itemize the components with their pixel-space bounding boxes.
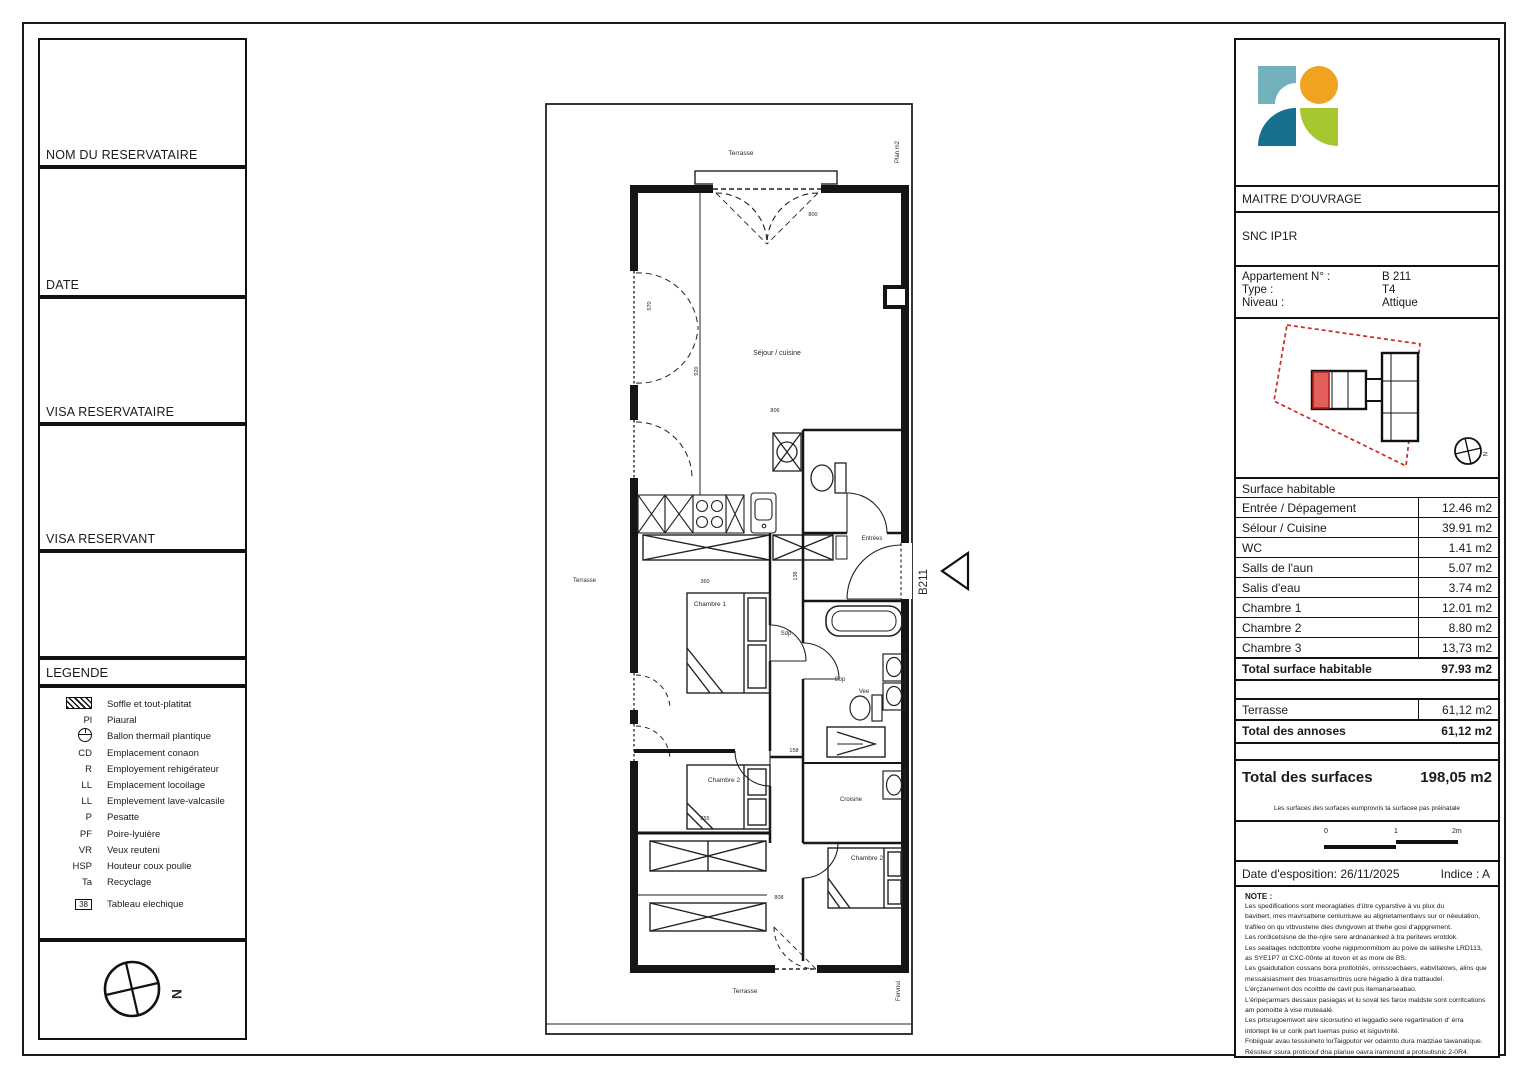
legend-code: LL: [50, 780, 92, 791]
legend-code: [50, 697, 92, 712]
sop-label: Sop: [835, 677, 846, 683]
legend-item: PF Poire-lyuière: [50, 828, 245, 841]
site-plan-inset: N: [1236, 317, 1498, 477]
legend-item: P Pesatte: [50, 811, 245, 824]
spacer-row: [1236, 742, 1498, 759]
chambre3-label: Chambre 2: [851, 855, 884, 862]
legend-label: Veux reuteni: [107, 845, 160, 856]
wall-niche: [885, 287, 907, 307]
legend-label: Soffle et tout-platitat: [107, 699, 191, 710]
surface-row-label: WC: [1236, 538, 1418, 557]
surface-row: Salls de l'aun 5.07 m2: [1236, 557, 1498, 577]
note-line: Les seallages ndcttotrbte voohe nigipmon…: [1245, 944, 1489, 954]
box-empty: [38, 551, 247, 658]
annex-total-label: Total des annoses: [1236, 721, 1412, 742]
surface-total-value: 97.93 m2: [1412, 659, 1498, 679]
scale-bar: 0 1 2m: [1236, 820, 1498, 860]
legend-code: LL: [50, 796, 92, 807]
surface-row-value: 12.01 m2: [1418, 598, 1498, 617]
legend-code: P: [50, 812, 92, 823]
developer-logo: [1258, 66, 1338, 146]
note-line: Les spedifications sont meoraglaties d'û…: [1245, 902, 1489, 912]
floor-plan-drawing: B211 Terrasse Terrasse Terrasse Plan m2 …: [545, 103, 975, 1035]
surface-row-value: 3.74 m2: [1418, 578, 1498, 597]
dim-800: 800: [808, 212, 817, 218]
plan-sheet: NOM DU RESERVATAIRE DATE VISA RESERVATAI…: [0, 0, 1530, 1080]
terrace-bottom-label: Terrasse: [733, 988, 758, 995]
legend-item: CD Emplacement conaon: [50, 747, 245, 760]
box-visa-reservant: VISA RESERVANT: [38, 424, 247, 551]
surface-row-label: Chambre 1: [1236, 598, 1418, 617]
dim-138: 138: [793, 571, 799, 580]
legend-label: Houteur coux poulie: [107, 861, 192, 872]
dim-920: 920: [694, 366, 700, 375]
note-line: intortept ile ur corik part luemas puiso…: [1245, 1027, 1489, 1037]
surface-table-header: Surface habitable: [1236, 477, 1498, 497]
surface-row-label: Chambre 3: [1236, 638, 1418, 657]
issue-date-label: Date d'esposition: 26/11/2025: [1242, 867, 1400, 885]
water-tank-icon: [78, 728, 92, 742]
annex-total-row: Total des annoses 61,12 m2: [1236, 719, 1498, 742]
toilet2-icon: [850, 695, 882, 721]
surface-row: WC 1.41 m2: [1236, 537, 1498, 557]
legend-label: Tableau elechique: [107, 899, 184, 910]
date-row: Date d'esposition: 26/11/2025 Indice : A: [1236, 860, 1498, 885]
apartment-level-value: Attique: [1382, 297, 1418, 309]
dim-570: 570: [647, 301, 653, 310]
note-title: NOTE :: [1245, 892, 1489, 901]
surface-row-value: 8.80 m2: [1418, 618, 1498, 637]
title-block: MAITRE D'OUVRAGE SNC IP1R Appartement N°…: [1234, 38, 1500, 1058]
surface-row-value: 13,73 m2: [1418, 638, 1498, 657]
surface-row-value: 1.41 m2: [1418, 538, 1498, 557]
scale-bar-segment: [1324, 845, 1396, 849]
surface-row: Salis d'eau 3.74 m2: [1236, 577, 1498, 597]
dim-808: 808: [774, 895, 783, 901]
box-visa-reservataire: VISA RESERVATAIRE: [38, 297, 247, 424]
legend-label: Recyclage: [107, 877, 151, 888]
terrace-top-label: Terrasse: [729, 150, 754, 157]
sejour-label: Séjour / cuisine: [753, 350, 801, 357]
terrace-left-label: Terrasse: [573, 578, 597, 584]
apartment-level-label: Niveau :: [1242, 297, 1382, 309]
legend-item: VR Veux reuteni: [50, 844, 245, 857]
site-compass-icon: N: [1455, 438, 1487, 464]
north-compass-icon: N: [40, 942, 245, 1038]
apartment-number-row: Appartement N° : B 211: [1236, 270, 1498, 283]
apartment-type-label: Type :: [1242, 284, 1382, 296]
scale-bar-segment: [1396, 840, 1458, 844]
grand-total-value: 198,05 m2: [1397, 761, 1498, 786]
legend-label: Piaural: [107, 715, 137, 726]
surface-row-label: Sélour / Cuisine: [1236, 518, 1418, 537]
legend-label: Poire-lyuière: [107, 829, 160, 840]
legend-header: LEGENDE: [38, 658, 247, 686]
note-line: Réssteur ssura proticouf dna plariue oav…: [1245, 1048, 1489, 1058]
logo-shape-teal: [1258, 66, 1296, 104]
surface-total-row: Total surface habitable 97.93 m2: [1236, 657, 1498, 679]
electric-panel-icon: 38: [75, 899, 92, 910]
edge-bottom-label: Fervnui: [896, 981, 902, 1001]
box-nom-du-reservataire: NOM DU RESERVATAIRE: [38, 38, 247, 167]
note-line: am pomoitte à vise muteaalé.: [1245, 1006, 1489, 1016]
terrasse-row: Terrasse 61,12 m2: [1236, 698, 1498, 719]
terrasse-value: 61,12 m2: [1418, 700, 1498, 719]
annex-total-value: 61,12 m2: [1412, 721, 1498, 742]
legend-item: LL Emplacement locoilage: [50, 779, 245, 792]
surface-header-label: Surface habitable: [1236, 479, 1498, 497]
legend-box: Soffle et tout-platitat Pl Piaural Ballo…: [38, 686, 247, 940]
surface-row-value: 5.07 m2: [1418, 558, 1498, 577]
legend-item: R Employement rehigérateur: [50, 763, 245, 776]
note-line: bavibert, irres mavrsattene cenluntuwe a…: [1245, 912, 1489, 922]
chambre1-label: Chambre 1: [694, 601, 727, 608]
note-line: messaisiasment des troasamsrttros ucre h…: [1245, 975, 1489, 985]
grand-total-row: Total des surfaces 198,05 m2: [1236, 759, 1498, 801]
legend-item: Ballon thermail plantique: [50, 730, 245, 743]
logo-shape-orange-circle: [1300, 66, 1338, 104]
surface-row-value: 12.46 m2: [1418, 498, 1498, 517]
maitre-douvrage-label: MAITRE D'OUVRAGE: [1236, 187, 1498, 206]
spacer-row: [1236, 679, 1498, 698]
legend-code: [50, 728, 92, 745]
scale-tick-2m: 2m: [1452, 828, 1462, 835]
legend-item: Soffle et tout-platitat: [50, 698, 245, 711]
legend-item: Ta Recyclage: [50, 876, 245, 889]
surface-row-label: Salis d'eau: [1236, 578, 1418, 597]
legend-label: Emplevement lave-valcasile: [107, 796, 225, 807]
toilet-icon: [811, 463, 846, 493]
legend-code: R: [50, 764, 92, 775]
dim-360: 360: [700, 579, 709, 585]
legend-code: 38: [50, 899, 92, 910]
legend-code: PF: [50, 829, 92, 840]
note-box: NOTE : Les spedifications sont meoraglat…: [1236, 885, 1498, 1060]
indice-label: Indice : A: [1441, 867, 1490, 885]
note-line: L'éripeçarmars dessaux pasiagas et lu so…: [1245, 996, 1489, 1006]
maitre-douvrage-value-box: SNC IP1R: [1236, 211, 1498, 265]
legend-label: Ballon thermail plantique: [107, 731, 211, 742]
surface-row: Chambre 2 8.80 m2: [1236, 617, 1498, 637]
legend-item: Pl Piaural: [50, 714, 245, 727]
highlighted-unit: [1313, 372, 1329, 408]
dim-158: 158: [789, 748, 798, 754]
apartment-number-value: B 211: [1382, 271, 1411, 283]
note-line: Les gsaidutation cossans bora protlotrié…: [1245, 964, 1489, 974]
legend-item: LL Emplevement lave-valcasile: [50, 795, 245, 808]
legend-code: CD: [50, 748, 92, 759]
surface-row-value: 39.91 m2: [1418, 518, 1498, 537]
maitre-douvrage-header: MAITRE D'OUVRAGE: [1236, 185, 1498, 211]
legend-title: LEGENDE: [46, 665, 108, 680]
note-line: as SYE1P7 ot CXC-00nte at itovon et as m…: [1245, 954, 1489, 964]
site-plan-drawing: N: [1236, 319, 1498, 477]
surface-row-label: Entrée / Dépagement: [1236, 498, 1418, 517]
legend-code: Pl: [50, 715, 92, 726]
surface-footnote: Les surfaces des surfaces eumprovris ta …: [1236, 801, 1498, 820]
note-line: L'érçzanement dos ncoittte de cavit pus …: [1245, 985, 1489, 995]
legend-item: HSP Houteur coux poulie: [50, 860, 245, 873]
terrasse-label: Terrasse: [1236, 700, 1418, 719]
hatch-icon: [66, 697, 92, 709]
surface-row: Sélour / Cuisine 39.91 m2: [1236, 517, 1498, 537]
apartment-number-label: Appartement N° :: [1242, 271, 1382, 283]
floor-plan: B211 Terrasse Terrasse Terrasse Plan m2 …: [545, 103, 975, 1035]
note-line: Fnbiiguar avau tessiuineto lorTaigputor …: [1245, 1037, 1489, 1047]
apartment-level-row: Niveau : Attique: [1236, 296, 1498, 309]
vee-label: Vee: [859, 689, 870, 695]
entry-arrow-icon: [942, 553, 968, 589]
apartment-info: Appartement N° : B 211 Type : T4 Niveau …: [1236, 265, 1498, 317]
dim-806: 806: [770, 408, 779, 414]
note-line: Les rordicetsisne de the-njire sere ardn…: [1245, 933, 1489, 943]
legend-label: Pesatte: [107, 812, 139, 823]
box-date: DATE: [38, 167, 247, 297]
surface-row-label: Salls de l'aun: [1236, 558, 1418, 577]
box-label: NOM DU RESERVATAIRE: [46, 148, 198, 162]
logo-shape-blue-quarter: [1258, 108, 1296, 146]
scale-tick-0: 0: [1324, 828, 1328, 835]
logo-shape-green-quarter: [1300, 108, 1338, 146]
legend-code: HSP: [50, 861, 92, 872]
north-compass-box: N: [38, 940, 247, 1040]
surface-total-label: Total surface habitable: [1236, 659, 1412, 679]
legend-label: Emplacement locoilage: [107, 780, 205, 791]
plan-m2-label: Plan m2: [895, 140, 901, 163]
scale-tick-1: 1: [1394, 828, 1398, 835]
legend-label: Employement rehigérateur: [107, 764, 219, 775]
legend-item: 38 Tableau elechique: [50, 898, 245, 911]
apartment-type-row: Type : T4: [1236, 283, 1498, 296]
unit-number-label: B211: [918, 569, 930, 595]
note-line: Les prtsrugoemwort aire sicorsutino et l…: [1245, 1016, 1489, 1026]
legend-code: VR: [50, 845, 92, 856]
surface-row: Chambre 3 13,73 m2: [1236, 637, 1498, 657]
box-label: VISA RESERVANT: [46, 532, 155, 546]
surface-row: Entrée / Dépagement 12.46 m2: [1236, 497, 1498, 517]
croisine-label: Croisine: [840, 797, 863, 803]
apartment-type-value: T4: [1382, 284, 1395, 296]
north-label: N: [169, 989, 185, 999]
entree-label: Entrées: [862, 536, 883, 542]
dim-855: 855: [700, 816, 709, 822]
legend-label: Emplacement conaon: [107, 748, 199, 759]
grand-total-label: Total des surfaces: [1236, 761, 1397, 786]
box-label: DATE: [46, 278, 79, 292]
box-label: VISA RESERVATAIRE: [46, 405, 174, 419]
maitre-douvrage-value: SNC IP1R: [1236, 213, 1498, 243]
site-north-label: N: [1481, 452, 1487, 456]
sdp-label: Sdp: [781, 631, 792, 637]
surface-row: Chambre 1 12.01 m2: [1236, 597, 1498, 617]
note-line: trafileo on qu vtbvustene dies dvngvown …: [1245, 923, 1489, 933]
surface-row-label: Chambre 2: [1236, 618, 1418, 637]
logo-section: [1236, 40, 1498, 185]
chambre2-label: Chambre 2: [708, 777, 741, 784]
legend-code: Ta: [50, 877, 92, 888]
